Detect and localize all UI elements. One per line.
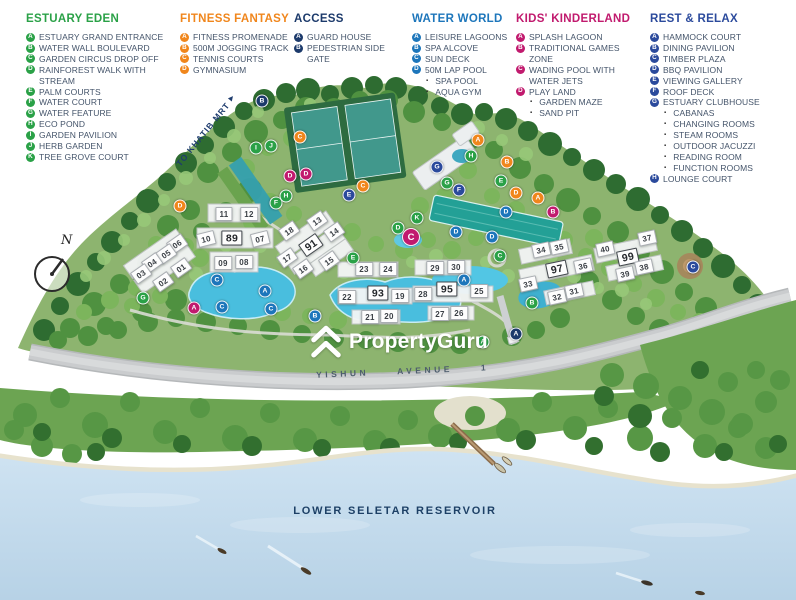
legend-section-rest-relax: REST & RELAXAHAMMOCK COURTBDINING PAVILI…: [650, 13, 792, 185]
estuary-marker-E: E: [347, 252, 360, 265]
legend-item-label: GUARD HOUSE: [307, 32, 371, 43]
north-label: N: [61, 233, 72, 248]
legend-item: JHERB GARDEN: [26, 141, 178, 152]
water-marker-C: C: [211, 274, 224, 287]
legend-item-label: LEISURE LAGOONS: [425, 32, 507, 43]
legend-item: BWATER WALL BOULEVARD: [26, 43, 178, 54]
stack-number-tag: 11: [215, 207, 232, 221]
legend-subitem: SAND PIT: [516, 108, 640, 119]
compass-dial-icon: [22, 236, 86, 300]
stack-number-tag: 09: [214, 256, 232, 270]
estuary-marker-B: B: [526, 297, 539, 310]
legend-key-badge: B: [26, 44, 35, 53]
site-plan: ESTUARY EDENAESTUARY GRAND ENTRANCEBWATE…: [0, 0, 796, 600]
legend-key-badge: H: [26, 120, 35, 129]
legend: ESTUARY EDENAESTUARY GRAND ENTRANCEBWATE…: [0, 13, 796, 183]
legend-item-label: ROOF DECK: [663, 87, 714, 98]
estuary-marker-H: H: [280, 190, 293, 203]
legend-item: EVIEWING GALLERY: [650, 76, 792, 87]
legend-item-label: TIMBER PLAZA: [663, 54, 726, 65]
legend-item-label: WATER COURT: [39, 97, 102, 108]
legend-item-label: ESTUARY GRAND ENTRANCE: [39, 32, 163, 43]
estuary-marker-G: G: [137, 292, 150, 305]
block-number-tag: 93: [367, 286, 388, 301]
stack-number-tag: 29: [426, 261, 444, 275]
legend-subitem: CHANGING ROOMS: [650, 119, 792, 130]
kids-marker-A: A: [188, 302, 201, 315]
legend-item: CGARDEN CIRCUS DROP OFF: [26, 54, 178, 65]
legend-subitem: OUTDOOR JACUZZI: [650, 141, 792, 152]
water-marker-D: D: [450, 226, 463, 239]
rest-marker-C: C: [687, 261, 700, 274]
legend-item-label: TRADITIONAL GAMES ZONE: [529, 43, 640, 65]
water-marker-A: A: [458, 274, 471, 287]
legend-section-water-world: WATER WORLDALEISURE LAGOONSBSPA ALCOVECS…: [412, 13, 520, 97]
legend-item: D50M LAP POOL: [412, 65, 520, 76]
estuary-marker-C: C: [494, 250, 507, 263]
legend-key-badge: D: [26, 65, 35, 74]
legend-key-badge: B: [294, 44, 303, 53]
legend-item-label: WATER FEATURE: [39, 108, 111, 119]
legend-key-badge: A: [26, 33, 35, 42]
fitness-marker-A: A: [532, 192, 545, 205]
stack-number-tag: 12: [240, 207, 258, 221]
legend-item: FWATER COURT: [26, 97, 178, 108]
legend-title: ESTUARY EDEN: [26, 13, 178, 25]
legend-item: DGYMNASIUM: [180, 65, 292, 76]
legend-key-badge: E: [26, 87, 35, 96]
legend-section-kids-kinderland: KIDS' KINDERLANDASPLASH LAGOONBTRADITION…: [516, 13, 640, 119]
legend-item-label: OUTDOOR JACUZZI: [673, 141, 755, 152]
legend-item-label: WADING POOL WITH WATER JETS: [529, 65, 640, 87]
stack-number-tag: 28: [414, 287, 432, 301]
legend-key-badge: C: [412, 54, 421, 63]
legend-item-label: GARDEN PAVILION: [39, 130, 117, 141]
legend-item: CSUN DECK: [412, 54, 520, 65]
legend-title: REST & RELAX: [650, 13, 792, 25]
legend-key-badge: G: [26, 109, 35, 118]
rest-marker-F: F: [453, 184, 466, 197]
legend-item-label: SPA ALCOVE: [425, 43, 478, 54]
legend-item-label: PEDESTRIAN SIDE GATE: [307, 43, 406, 65]
block-number-tag: 89: [221, 231, 242, 246]
watermark-text: PropertyGuru: [349, 330, 488, 354]
stack-number-tag: 08: [235, 255, 253, 269]
stack-number-tag: 25: [470, 284, 488, 298]
legend-item: AFITNESS PROMENADE: [180, 32, 292, 43]
legend-item-label: FITNESS PROMENADE: [193, 32, 288, 43]
legend-item-label: GARDEN CIRCUS DROP OFF: [39, 54, 159, 65]
legend-item-label: CHANGING ROOMS: [673, 119, 755, 130]
legend-key-badge: B: [412, 44, 421, 53]
legend-item-label: BBQ PAVILION: [663, 65, 722, 76]
legend-item: DBBQ PAVILION: [650, 65, 792, 76]
legend-item: BTRADITIONAL GAMES ZONE: [516, 43, 640, 65]
legend-item-label: ESTUARY CLUBHOUSE: [663, 97, 760, 108]
reservoir-label: LOWER SELETAR RESERVOIR: [250, 505, 540, 517]
legend-key-badge: D: [180, 65, 189, 74]
legend-key-badge: F: [650, 87, 659, 96]
legend-item: FROOF DECK: [650, 87, 792, 98]
legend-item: AESTUARY GRAND ENTRANCE: [26, 32, 178, 43]
rest-marker-E: E: [343, 189, 356, 202]
legend-key-badge: C: [26, 54, 35, 63]
fitness-marker-D: D: [174, 200, 187, 213]
stack-number-tag: 27: [431, 307, 449, 321]
legend-item: CTENNIS COURTS: [180, 54, 292, 65]
legend-key-badge: G: [650, 98, 659, 107]
legend-item: HECO POND: [26, 119, 178, 130]
stack-number-tag: 24: [379, 262, 397, 276]
legend-item: DRAINFOREST WALK WITH STREAM: [26, 65, 178, 87]
legend-item-label: CABANAS: [673, 108, 714, 119]
stack-number-tag: 30: [447, 260, 465, 274]
water-marker-C: C: [265, 303, 278, 316]
legend-item: EPALM COURTS: [26, 87, 178, 98]
legend-item-label: HERB GARDEN: [39, 141, 102, 152]
legend-item-label: VIEWING GALLERY: [663, 76, 743, 87]
legend-key-badge: K: [26, 153, 35, 162]
legend-key-badge: E: [650, 76, 659, 85]
legend-key-badge: D: [650, 65, 659, 74]
legend-item-label: PLAY LAND: [529, 87, 576, 98]
legend-key-badge: C: [180, 54, 189, 63]
legend-item-label: TENNIS COURTS: [193, 54, 264, 65]
estuary-marker-K: K: [411, 212, 424, 225]
legend-item: HLOUNGE COURT: [650, 174, 792, 185]
legend-item-label: SPA POOL: [435, 76, 478, 87]
legend-key-badge: H: [650, 174, 659, 183]
legend-item-label: FUNCTION ROOMS: [673, 163, 753, 174]
legend-subitem: STEAM ROOMS: [650, 130, 792, 141]
legend-item-label: 50M LAP POOL: [425, 65, 487, 76]
legend-subitem: FUNCTION ROOMS: [650, 163, 792, 174]
legend-item: ALEISURE LAGOONS: [412, 32, 520, 43]
legend-key-badge: A: [516, 33, 525, 42]
legend-item: AHAMMOCK COURT: [650, 32, 792, 43]
legend-key-badge: B: [650, 44, 659, 53]
legend-item-label: READING ROOM: [673, 152, 742, 163]
legend-subitem: READING ROOM: [650, 152, 792, 163]
legend-item: BDINING PAVILION: [650, 43, 792, 54]
legend-title: WATER WORLD: [412, 13, 520, 25]
legend-item: CTIMBER PLAZA: [650, 54, 792, 65]
water-marker-A: A: [259, 285, 272, 298]
propertyguru-logo-icon: [310, 324, 342, 360]
legend-item: IGARDEN PAVILION: [26, 130, 178, 141]
legend-item-label: RAINFOREST WALK WITH STREAM: [39, 65, 178, 87]
legend-item-label: LOUNGE COURT: [663, 174, 733, 185]
legend-key-badge: D: [516, 87, 525, 96]
legend-item: B500M JOGGING TRACK: [180, 43, 292, 54]
legend-item: GWATER FEATURE: [26, 108, 178, 119]
legend-key-badge: A: [412, 33, 421, 42]
water-marker-C: C: [216, 301, 229, 314]
fitness-marker-D: D: [510, 187, 523, 200]
stack-number-tag: 21: [361, 310, 379, 324]
road-word: 1: [481, 362, 490, 372]
legend-title: KIDS' KINDERLAND: [516, 13, 640, 25]
legend-item-label: WATER WALL BOULEVARD: [39, 43, 150, 54]
legend-item: BSPA ALCOVE: [412, 43, 520, 54]
legend-item-label: DINING PAVILION: [663, 43, 735, 54]
legend-key-badge: J: [26, 142, 35, 151]
legend-item: BPEDESTRIAN SIDE GATE: [294, 43, 406, 65]
legend-key-badge: A: [650, 33, 659, 42]
north-compass: N: [22, 236, 86, 300]
legend-subitem: SPA POOL: [412, 76, 520, 87]
legend-item-label: 500M JOGGING TRACK: [193, 43, 289, 54]
legend-item-label: ECO POND: [39, 119, 85, 130]
legend-item-label: GYMNASIUM: [193, 65, 246, 76]
legend-section-access: ACCESSAGUARD HOUSEBPEDESTRIAN SIDE GATE: [294, 13, 406, 65]
legend-item: ASPLASH LAGOON: [516, 32, 640, 43]
legend-title: ACCESS: [294, 13, 406, 25]
stack-number-tag: 22: [338, 290, 356, 304]
access-marker-A: A: [510, 328, 523, 341]
legend-item-label: HAMMOCK COURT: [663, 32, 741, 43]
water-marker-D: D: [500, 206, 513, 219]
legend-item-label: SAND PIT: [539, 108, 579, 119]
legend-subitem: AQUA GYM: [412, 87, 520, 98]
legend-item: GESTUARY CLUBHOUSE: [650, 97, 792, 108]
legend-key-badge: B: [180, 44, 189, 53]
legend-subitem: CABANAS: [650, 108, 792, 119]
legend-item-label: GARDEN MAZE: [539, 97, 602, 108]
legend-title: FITNESS FANTASY: [180, 13, 292, 25]
water-marker-D: D: [486, 231, 499, 244]
stack-number-tag: 20: [380, 309, 398, 323]
legend-item-label: PALM COURTS: [39, 87, 101, 98]
legend-item: AGUARD HOUSE: [294, 32, 406, 43]
stack-number-tag: 23: [355, 262, 373, 276]
kids-marker-C: C: [402, 228, 420, 246]
legend-section-estuary-eden: ESTUARY EDENAESTUARY GRAND ENTRANCEBWATE…: [26, 13, 178, 163]
legend-section-fitness-fantasy: FITNESS FANTASYAFITNESS PROMENADEB500M J…: [180, 13, 292, 76]
legend-key-badge: A: [294, 33, 303, 42]
legend-item: DPLAY LAND: [516, 87, 640, 98]
legend-key-badge: F: [26, 98, 35, 107]
legend-key-badge: A: [180, 33, 189, 42]
legend-item-label: TREE GROVE COURT: [39, 152, 129, 163]
legend-key-badge: D: [412, 65, 421, 74]
legend-key-badge: C: [516, 65, 525, 74]
legend-key-badge: B: [516, 44, 525, 53]
legend-item-label: SPLASH LAGOON: [529, 32, 603, 43]
stack-number-tag: 26: [450, 306, 468, 320]
legend-item: CWADING POOL WITH WATER JETS: [516, 65, 640, 87]
water-marker-B: B: [309, 310, 322, 323]
legend-item: KTREE GROVE COURT: [26, 152, 178, 163]
kids-marker-B: B: [547, 206, 560, 219]
legend-subitem: GARDEN MAZE: [516, 97, 640, 108]
legend-item-label: STEAM ROOMS: [673, 130, 738, 141]
block-number-tag: 95: [436, 282, 457, 297]
legend-key-badge: C: [650, 54, 659, 63]
propertyguru-watermark: PropertyGuru: [310, 324, 488, 360]
legend-key-badge: I: [26, 131, 35, 140]
stack-number-tag: 19: [391, 289, 409, 303]
legend-item-label: SUN DECK: [425, 54, 470, 65]
legend-item-label: AQUA GYM: [435, 87, 481, 98]
